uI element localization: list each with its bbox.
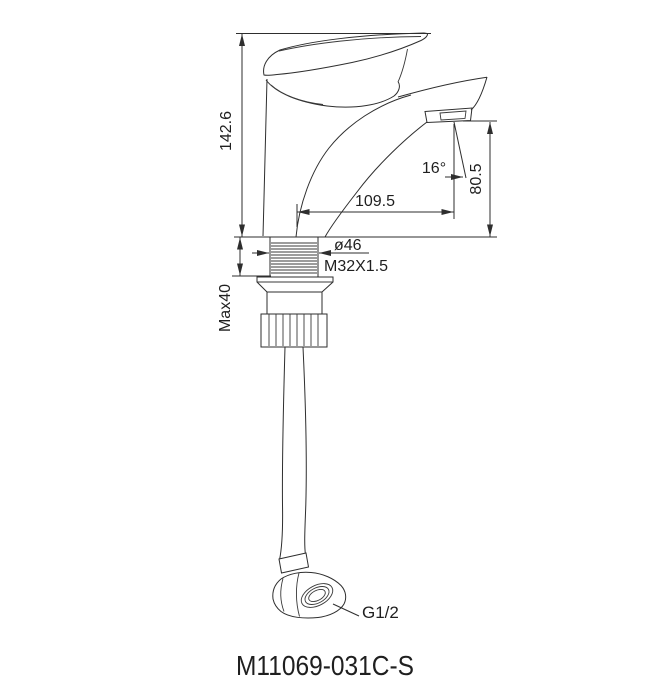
handle-cap bbox=[266, 80, 399, 107]
mounting-threads bbox=[271, 243, 317, 273]
dim-outlet-height: 80.5 bbox=[463, 121, 497, 237]
aerator-inner bbox=[440, 111, 466, 120]
hose-collar bbox=[279, 553, 309, 573]
handle-cap-inner bbox=[271, 85, 323, 105]
spout-front-curve bbox=[325, 122, 427, 237]
flange-diameter-label: ø46 bbox=[334, 237, 362, 254]
product-code-label: M11069-031C-S bbox=[236, 650, 414, 681]
max-mounting-label: Max40 bbox=[217, 284, 234, 332]
mounting-nut-ridges bbox=[269, 314, 318, 346]
supply-hose bbox=[273, 347, 346, 618]
mounting-cylinder bbox=[267, 292, 322, 314]
spout-top-edge bbox=[398, 77, 487, 97]
spout-back-curve bbox=[296, 95, 411, 237]
mounting-skirt bbox=[257, 277, 333, 292]
spout-tip-underside bbox=[471, 77, 487, 110]
hose-thread-label: G1/2 bbox=[362, 603, 399, 622]
faucet-technical-drawing: 142.6 Max40 109.5 80.5 16° ø46 M32X1.5 G… bbox=[0, 0, 645, 700]
spout-reach-label: 109.5 bbox=[355, 193, 395, 210]
hose-braid bbox=[280, 347, 307, 560]
cap-lever-joint bbox=[398, 49, 408, 82]
drawing-canvas: 142.6 Max40 109.5 80.5 16° ø46 M32X1.5 G… bbox=[0, 0, 645, 700]
outlet-angle-label: 16° bbox=[422, 160, 446, 177]
outlet-height-label: 80.5 bbox=[468, 163, 485, 194]
dim-max-mounting: Max40 bbox=[217, 238, 271, 333]
aerator bbox=[425, 108, 472, 123]
body-left-edge bbox=[263, 79, 267, 236]
overall-height-label: 142.6 bbox=[218, 111, 235, 151]
mounting-nut bbox=[261, 314, 327, 347]
mounting-thread-label: M32X1.5 bbox=[324, 258, 388, 275]
dim-outlet-angle: 16° bbox=[422, 122, 466, 178]
